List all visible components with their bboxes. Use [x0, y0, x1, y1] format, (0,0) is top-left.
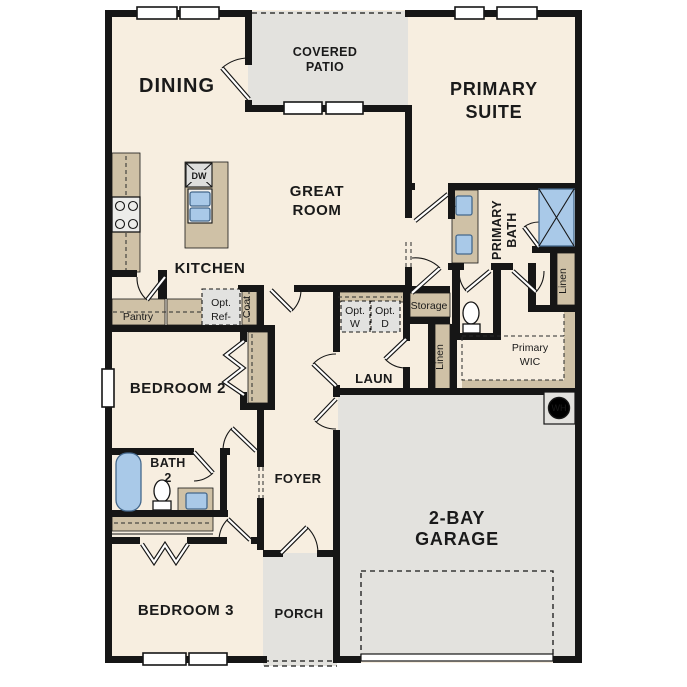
wic-shelf-right — [564, 312, 575, 388]
coat-closet-label: Coat — [241, 296, 253, 318]
window — [137, 7, 177, 19]
hall-linen-label: Linen — [434, 344, 446, 370]
dining-label: DINING — [139, 75, 215, 97]
stove-icon — [112, 197, 140, 232]
porch-label: PORCH — [275, 606, 324, 621]
window — [284, 102, 322, 114]
window — [102, 369, 114, 407]
toilet-primary — [463, 302, 480, 333]
window — [189, 653, 227, 665]
bathtub — [116, 453, 141, 511]
window — [180, 7, 219, 19]
storage-closet-label: Storage — [411, 300, 448, 312]
kitchen-sink — [188, 189, 212, 223]
foyer-label: FOYER — [275, 471, 322, 486]
primary-bath-label2: BATH — [505, 212, 519, 247]
water-heater-label: WH — [552, 403, 567, 413]
bedroom2-closet — [248, 332, 268, 403]
laundry-label: LAUN — [355, 371, 393, 386]
wic-shelf-bottom — [462, 380, 575, 388]
floor-plan-page: DINING COVEREDPATIO PRIMARYSUITE GREATRO… — [0, 0, 687, 687]
window — [326, 102, 363, 114]
garage-door — [361, 654, 553, 661]
bedroom3-label: BEDROOM 3 — [138, 602, 234, 619]
bath2-sink — [186, 493, 207, 509]
pantry-label: Pantry — [123, 311, 154, 323]
bedroom2-label: BEDROOM 2 — [130, 380, 226, 397]
dishwasher-label: DW — [192, 171, 207, 181]
kitchen-label: KITCHEN — [175, 260, 246, 277]
primary-bath-label: PRIMARY — [490, 200, 504, 260]
window — [143, 653, 186, 665]
floor-plan: DINING COVEREDPATIO PRIMARYSUITE GREATRO… — [0, 0, 687, 687]
window — [497, 7, 537, 19]
window — [455, 7, 484, 19]
bedroom3-closet — [112, 516, 213, 531]
bath-linen-label: Linen — [557, 268, 569, 294]
